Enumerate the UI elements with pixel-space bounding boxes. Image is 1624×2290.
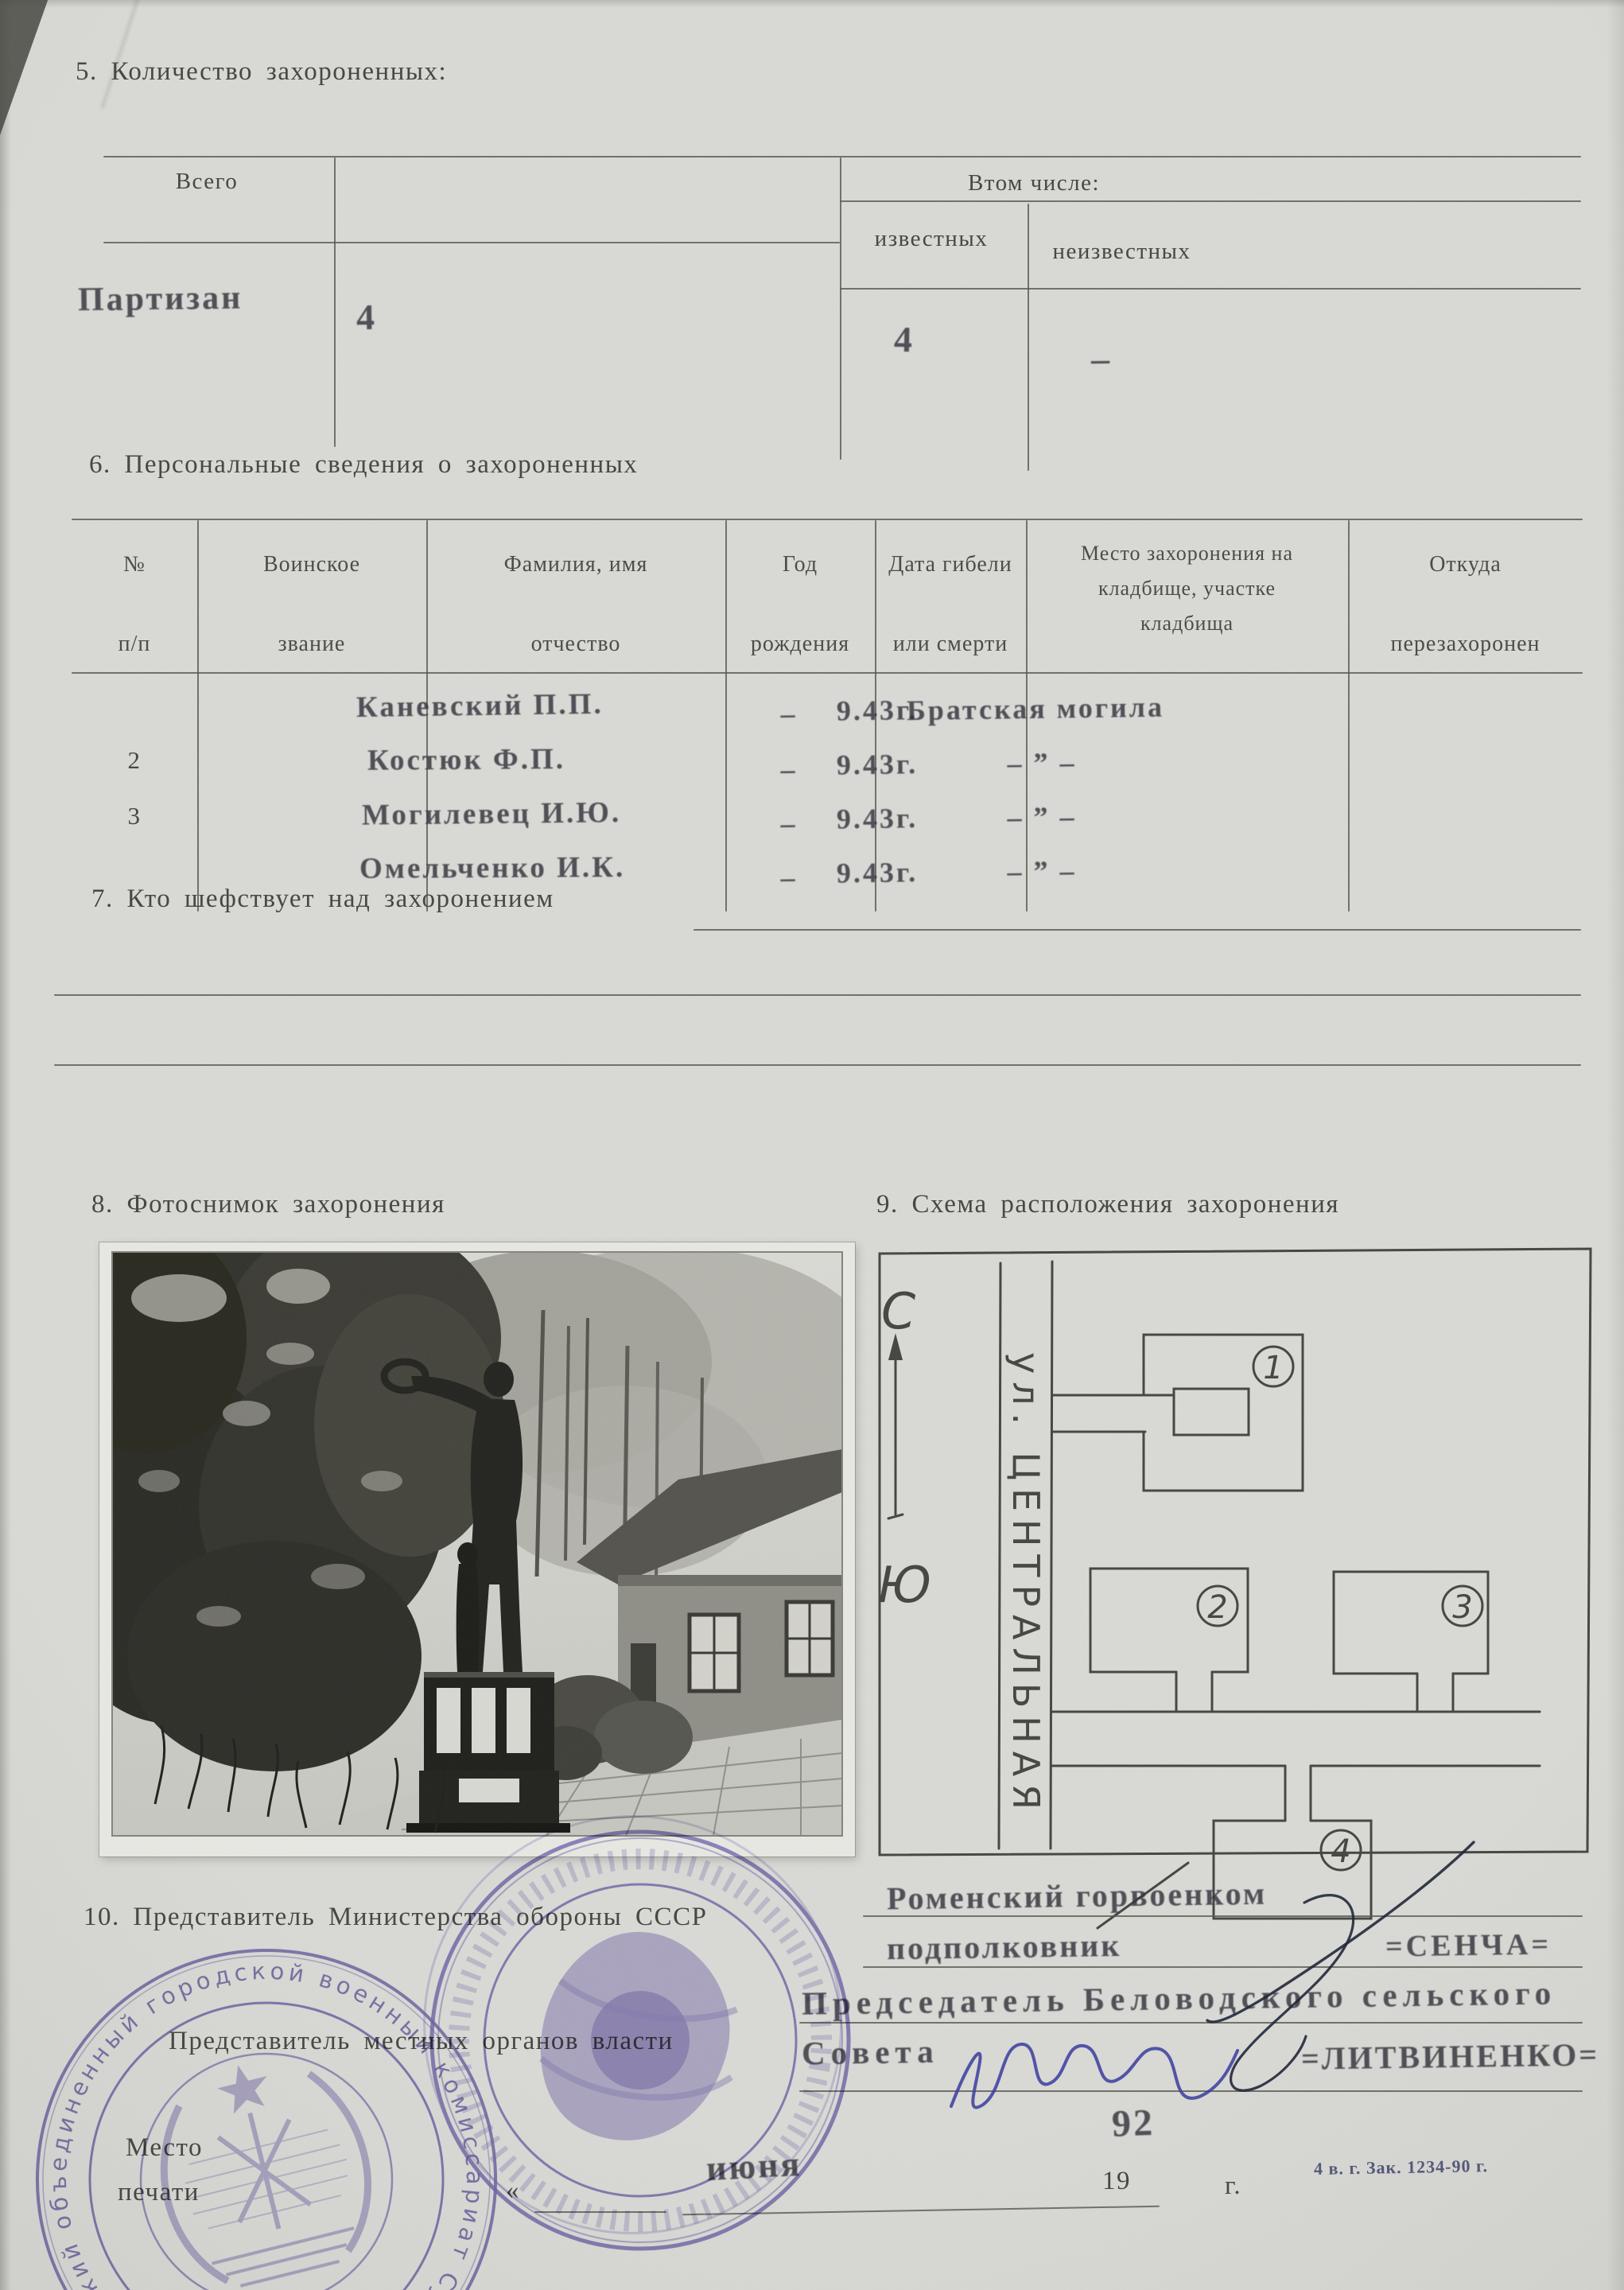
table5-header-total: Всего bbox=[151, 169, 262, 195]
table5-top-border bbox=[103, 156, 1581, 157]
table5-header-underline-left bbox=[103, 242, 840, 243]
cell-death: 9.43г. bbox=[802, 801, 954, 837]
table6-header-death: Дата гибели или смерти bbox=[875, 525, 1026, 684]
building-2-number: 2 bbox=[1207, 1589, 1227, 1626]
table5-header-including: Втом числе: bbox=[938, 170, 1129, 196]
building-window bbox=[690, 1615, 739, 1691]
table6-header-rank: Воинское звание bbox=[197, 525, 426, 684]
date-year-prefix: 19 bbox=[1102, 2167, 1131, 2196]
building-window bbox=[787, 1602, 833, 1675]
cell-name: Омельченко И.К. bbox=[359, 850, 625, 886]
table6-header-place: Место захоронения на кладбище, участке к… bbox=[1026, 525, 1348, 641]
chairman-signature bbox=[951, 2044, 1237, 2108]
cell-place: – ” – bbox=[938, 799, 1146, 835]
table5-header-underline-right bbox=[840, 288, 1581, 290]
table5-known-value: 4 bbox=[894, 318, 915, 360]
section7-title: 7. Кто шефствует над захоронением bbox=[91, 885, 554, 914]
scanned-burial-registration-form: 5. Количество захороненных: Всего Втом ч… bbox=[0, 0, 1624, 2290]
compass-south-label: Ю bbox=[878, 1556, 931, 1614]
ruled-line bbox=[694, 929, 1581, 931]
street-line-right bbox=[1051, 1262, 1052, 1849]
cell-name: Каневский П.П. bbox=[356, 687, 604, 725]
section5-title: 5. Количество захороненных: bbox=[76, 57, 447, 87]
table5-divider-1 bbox=[334, 157, 336, 447]
building-3-number: 3 bbox=[1452, 1589, 1472, 1626]
building-1-inner-plot bbox=[1174, 1389, 1249, 1435]
compass-north-label: С bbox=[881, 1282, 916, 1340]
stamp-ring-text: объединенный городской военный комиссари… bbox=[0, 1910, 535, 2290]
ruled-line bbox=[54, 994, 1581, 996]
svg-text:объединенный городской военный: объединенный городской военный комиссари… bbox=[0, 1910, 535, 2290]
table5-header-unknown: неизвестных bbox=[1040, 239, 1203, 265]
building-1-number: 1 bbox=[1263, 1350, 1283, 1386]
section6-title: 6. Персональные сведения о захороненных bbox=[89, 450, 638, 480]
table5-total-value: 4 bbox=[356, 296, 378, 338]
paper-crease bbox=[101, 0, 140, 109]
street-label: ул. ЦЕНТРАЛЬНАЯ bbox=[1004, 1352, 1047, 1814]
cell-place: – ” – bbox=[938, 853, 1146, 889]
table6-header-num: № п/п bbox=[72, 525, 197, 684]
cell-name: Могилевец И.Ю. bbox=[362, 795, 622, 832]
cell-num: 3 bbox=[72, 802, 197, 830]
section8-title: 8. Фотоснимок захоронения bbox=[91, 1190, 445, 1219]
scan-corner-shadow bbox=[0, 0, 68, 135]
table5-header-known: известных bbox=[864, 226, 999, 252]
round-stamp-military: объединенный городской военный комиссари… bbox=[0, 1902, 544, 2290]
cell-place: – ” – bbox=[938, 745, 1146, 781]
table5-divider-2 bbox=[840, 157, 841, 460]
table5-divider-3 bbox=[1028, 204, 1029, 471]
schema-frame bbox=[880, 1249, 1591, 1855]
cell-death: 9.43г. bbox=[802, 855, 954, 891]
cell-num: 2 bbox=[72, 746, 197, 775]
table6-header-birth: Год рождения bbox=[725, 525, 875, 684]
date-year-suffix: г. bbox=[1225, 2171, 1241, 2201]
commissar-signature bbox=[1207, 1842, 1474, 2022]
ruled-line bbox=[54, 1064, 1581, 1066]
street-line-left bbox=[999, 1263, 1000, 1849]
cell-place: Братская могила bbox=[907, 690, 1162, 727]
table5-including-underline bbox=[840, 200, 1581, 202]
table6-top-border bbox=[72, 519, 1583, 520]
cell-name: Костюк Ф.П. bbox=[367, 742, 565, 778]
cell-death: 9.43г. bbox=[802, 747, 954, 783]
table5-row-label: Партизан bbox=[78, 279, 243, 320]
table6-header-name: Фамилия, имя отчество bbox=[426, 525, 725, 684]
signatures-overlay bbox=[795, 1782, 1624, 2164]
commissar-signature bbox=[1231, 1895, 1354, 2091]
table6-header-from: Откуда перезахоронен bbox=[1348, 525, 1583, 684]
section9-title: 9. Схема расположения захоронения bbox=[876, 1190, 1339, 1219]
table5-unknown-value: – bbox=[1091, 337, 1113, 379]
